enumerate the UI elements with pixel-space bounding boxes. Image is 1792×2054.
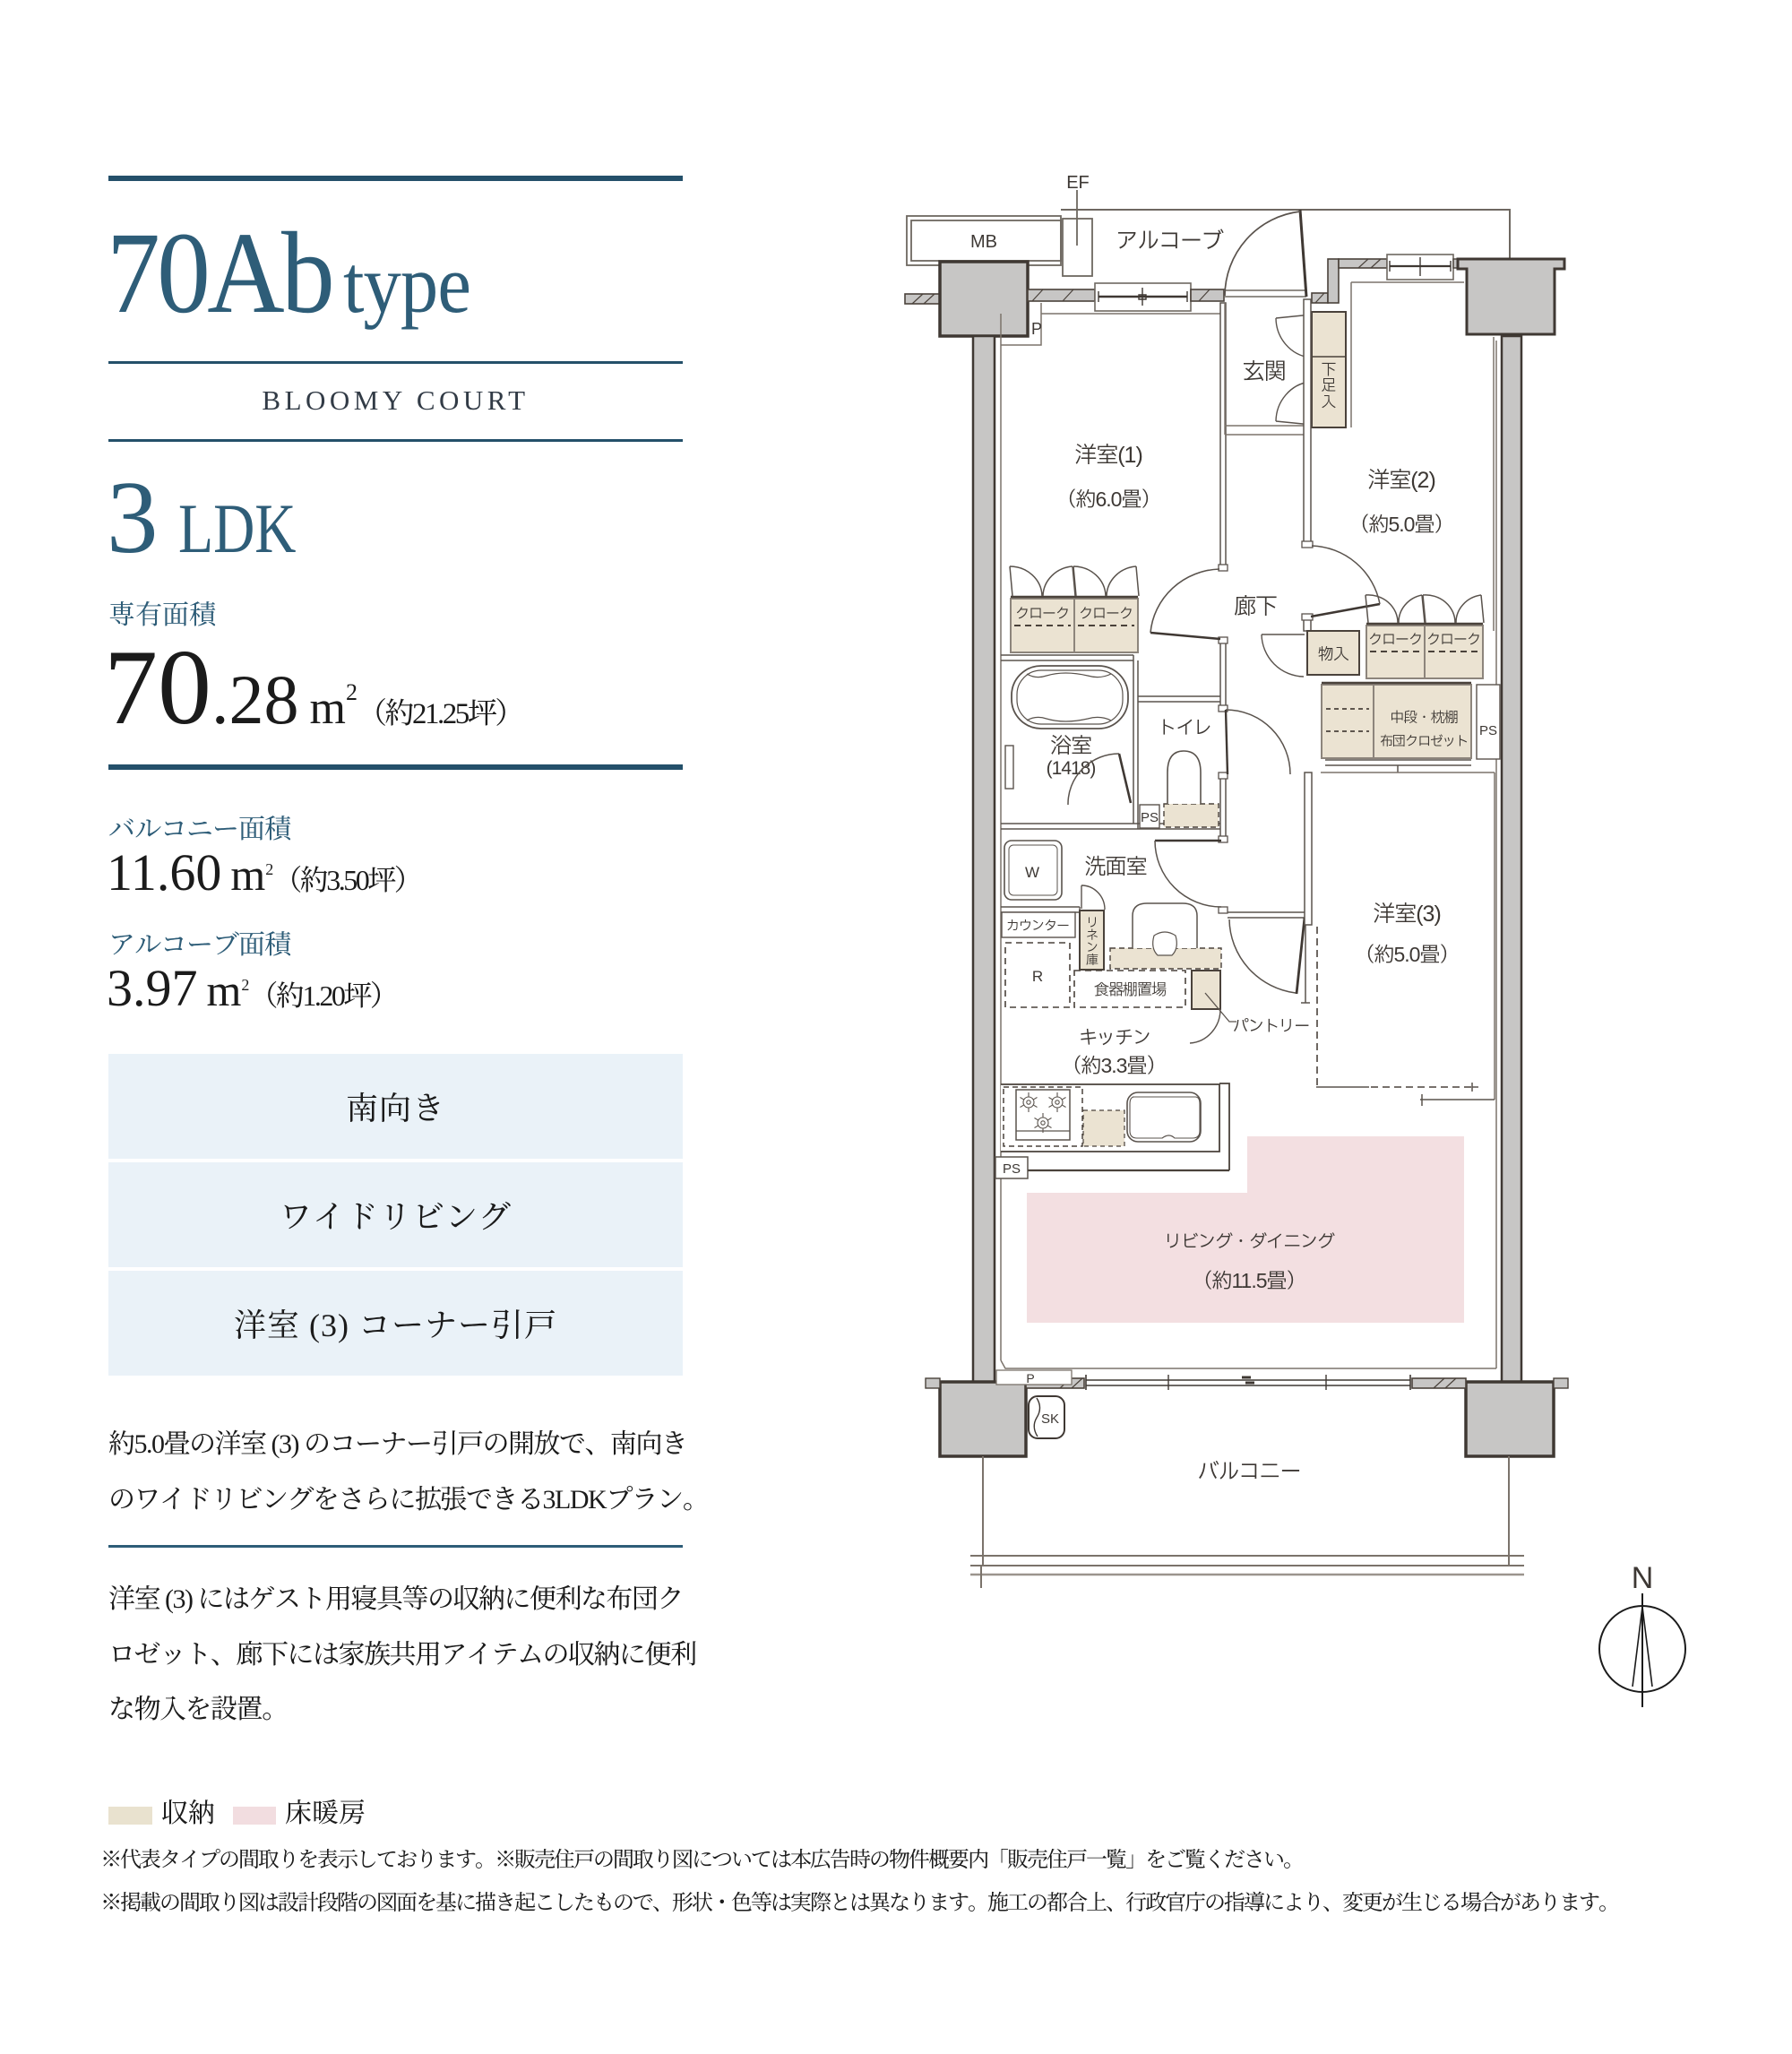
svg-text:（約5.0畳）: （約5.0畳） [1349, 513, 1454, 536]
svg-text:下: 下 [1322, 361, 1337, 378]
svg-text:パントリー: パントリー [1233, 1017, 1309, 1035]
svg-text:N: N [1632, 1561, 1654, 1595]
svg-text:アルコーブ: アルコーブ [1116, 229, 1224, 254]
svg-text:洋室(3): 洋室(3) [1373, 902, 1441, 927]
svg-text:トイレ: トイレ [1158, 718, 1211, 738]
svg-text:廊下: 廊下 [1234, 594, 1277, 619]
svg-text:食器棚置場: 食器棚置場 [1093, 981, 1166, 998]
svg-text:物入: 物入 [1318, 645, 1349, 663]
svg-text:布団クロゼット: 布団クロゼット [1380, 733, 1468, 749]
svg-text:（約5.0畳）: （約5.0畳） [1355, 943, 1460, 966]
svg-text:クローク: クローク [1426, 632, 1480, 648]
svg-text:浴室: 浴室 [1050, 734, 1091, 758]
svg-text:EF: EF [1066, 173, 1090, 193]
svg-text:カウンター: カウンター [1006, 919, 1069, 934]
svg-text:（約11.5畳）: （約11.5畳） [1192, 1269, 1305, 1292]
svg-text:P: P [1031, 320, 1042, 338]
svg-text:玄関: 玄関 [1243, 359, 1286, 384]
svg-text:R: R [1032, 968, 1043, 985]
svg-text:（約6.0畳）: （約6.0畳） [1056, 488, 1161, 511]
svg-text:PS: PS [1479, 723, 1497, 738]
svg-text:MB: MB [970, 232, 997, 252]
svg-text:バルコニー: バルコニー [1198, 1460, 1301, 1484]
svg-text:PS: PS [1003, 1161, 1021, 1177]
svg-text:洋室(2): 洋室(2) [1367, 468, 1435, 493]
svg-text:庫: 庫 [1086, 953, 1098, 967]
svg-text:中段・枕棚: 中段・枕棚 [1390, 710, 1457, 726]
svg-text:洋室(1): 洋室(1) [1074, 443, 1142, 468]
svg-text:クローク: クローク [1368, 632, 1422, 648]
svg-text:W: W [1025, 864, 1039, 881]
svg-text:リビング・ダイニング: リビング・ダイニング [1164, 1232, 1335, 1252]
svg-text:クローク: クローク [1015, 606, 1069, 622]
svg-text:クローク: クローク [1079, 606, 1133, 622]
svg-text:（約3.3畳）: （約3.3畳） [1062, 1054, 1167, 1077]
svg-text:洗面室: 洗面室 [1085, 855, 1147, 879]
svg-text:SK: SK [1041, 1411, 1059, 1427]
svg-text:P: P [1026, 1371, 1034, 1385]
svg-text:キッチン: キッチン [1079, 1028, 1150, 1049]
svg-text:PS: PS [1141, 810, 1159, 825]
svg-text:入: 入 [1322, 393, 1337, 410]
svg-text:(1418): (1418) [1047, 758, 1096, 779]
svg-text:足: 足 [1322, 377, 1337, 394]
